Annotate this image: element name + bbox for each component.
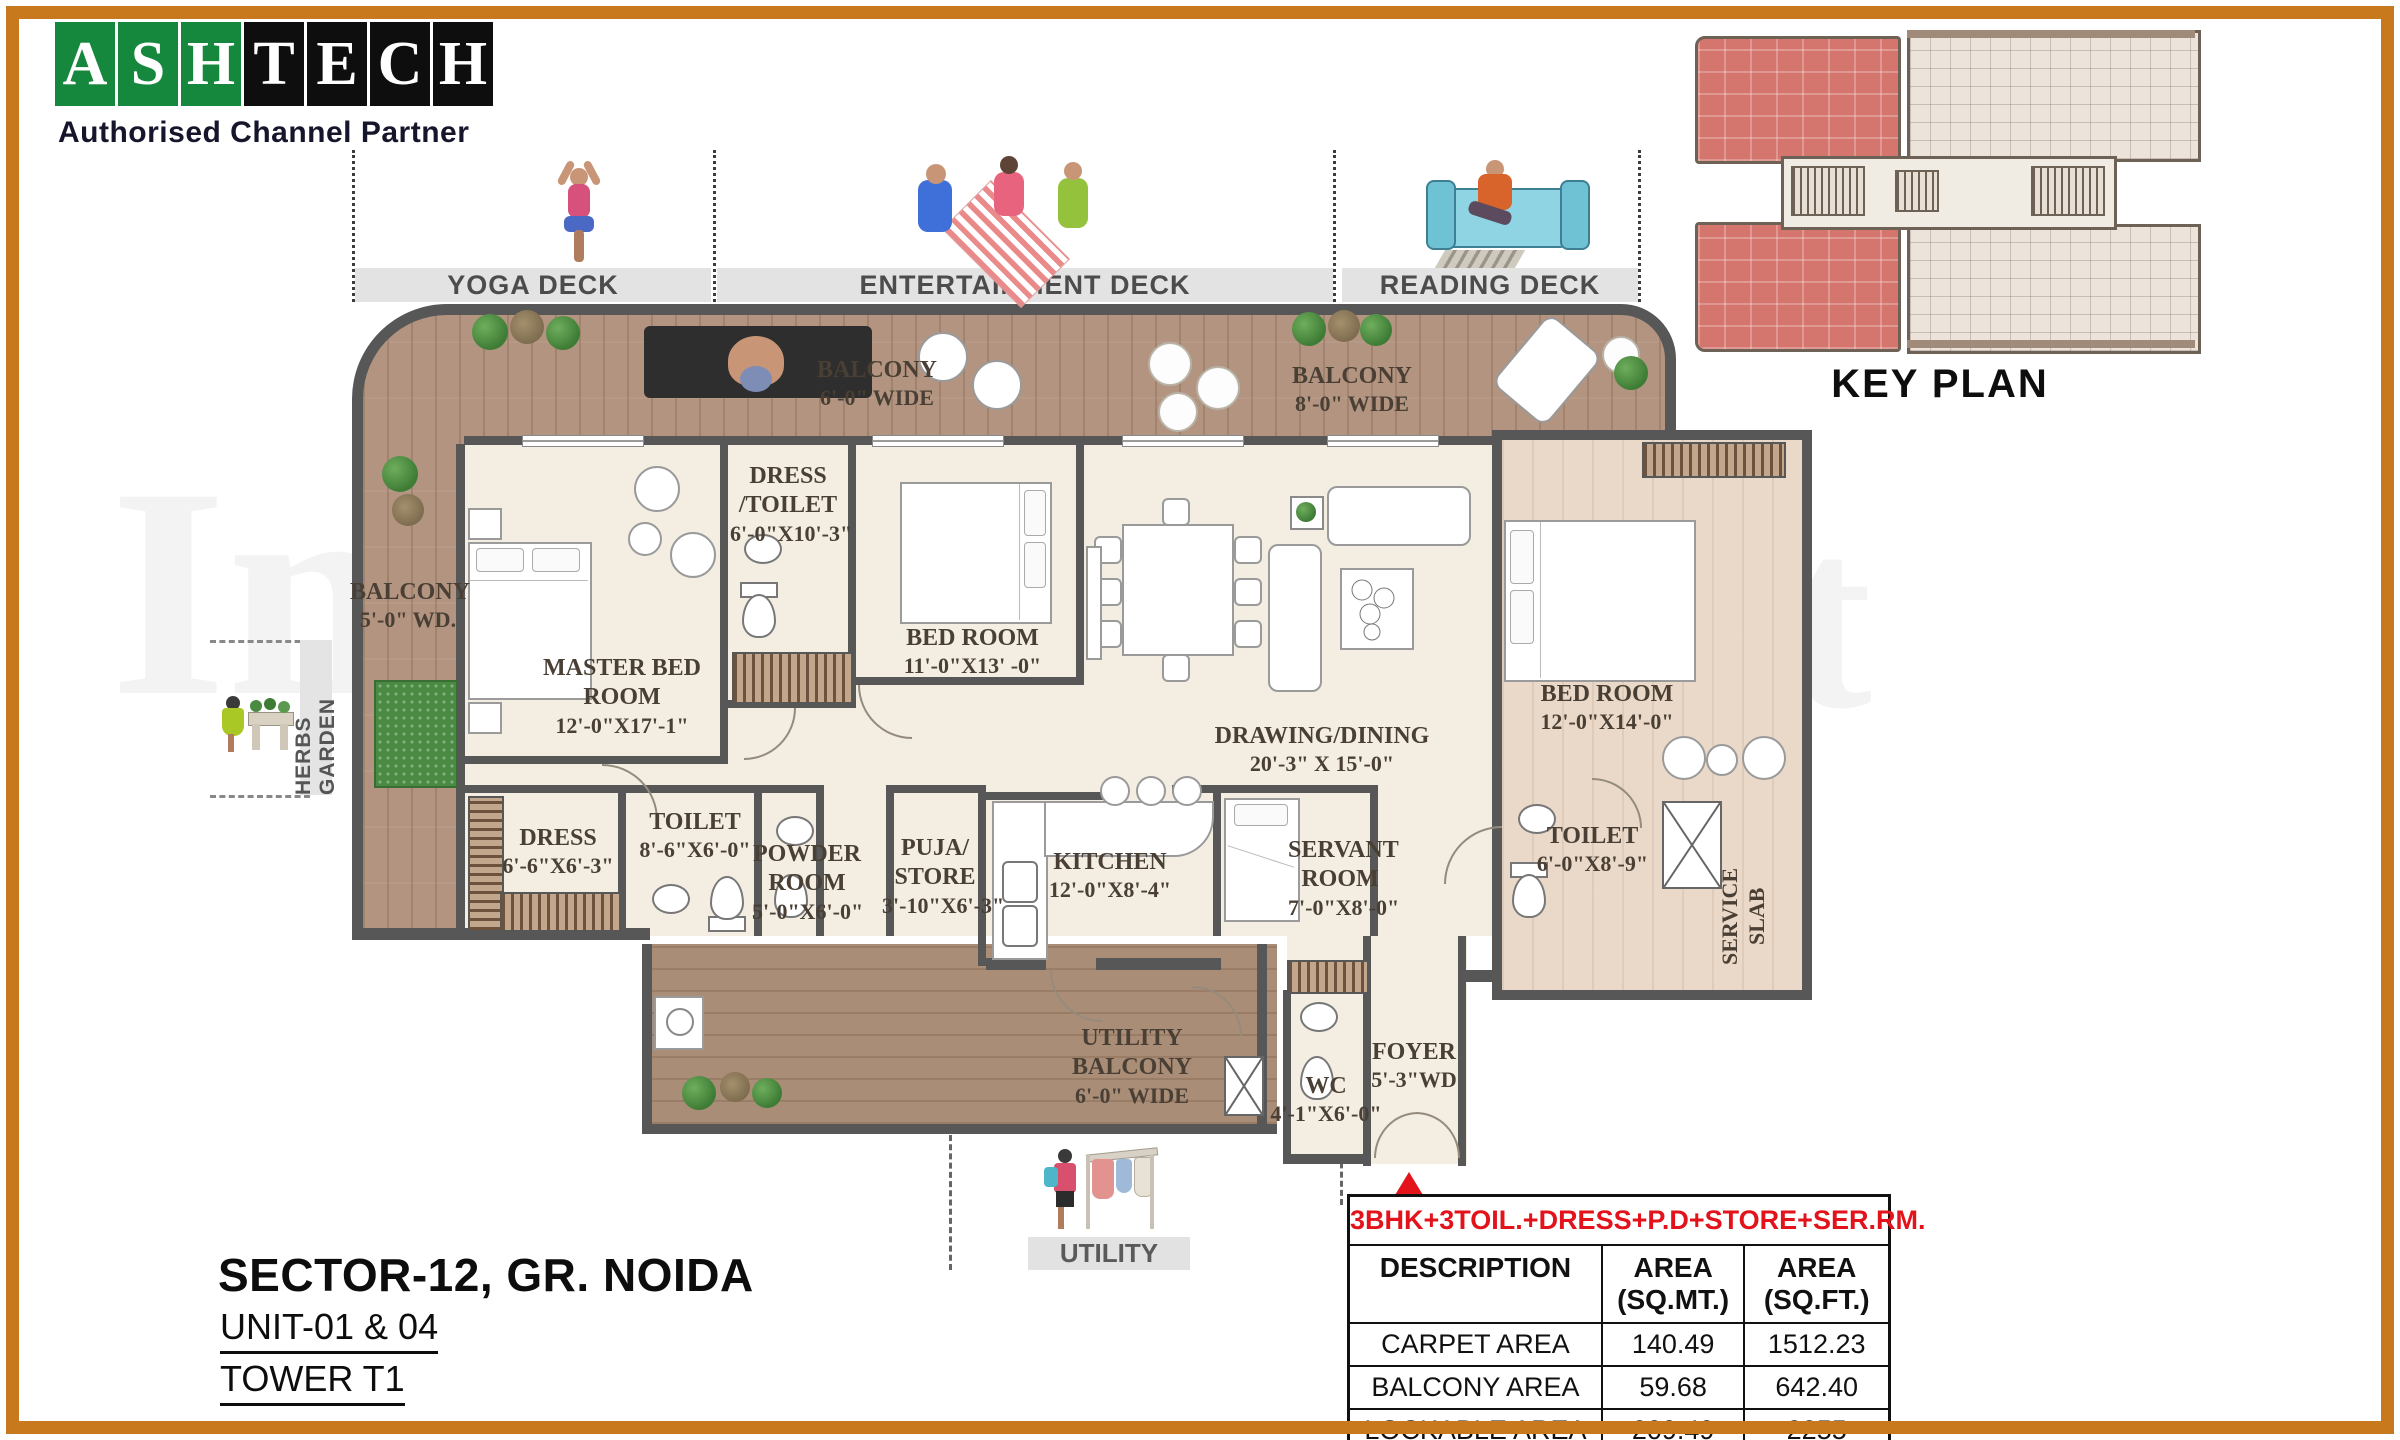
key-plan-deck-edge (1907, 30, 2195, 38)
chair-icon (1742, 736, 1786, 780)
yoga-person-icon (548, 168, 608, 264)
dining-chair (1162, 498, 1190, 526)
wall (464, 756, 728, 764)
shaft (1224, 1056, 1264, 1116)
logo-letter: T (244, 22, 304, 106)
side-table (468, 702, 502, 734)
plant-icon (752, 1078, 782, 1108)
room-label-puja-store: PUJA/ STORE3'-10"X6'-3" (882, 834, 988, 919)
shower-area (732, 652, 854, 704)
bed-icon (900, 482, 1052, 624)
plant-icon (1328, 310, 1360, 342)
window (1122, 435, 1244, 447)
deck-divider (1333, 150, 1336, 302)
sink-icon (652, 884, 690, 914)
sofa-icon (1268, 544, 1322, 692)
room-label-servant-room: SERVANT ROOM7'-0"X8'-0" (1288, 836, 1392, 921)
project-unit: UNIT-01 & 04 (220, 1306, 438, 1354)
key-plan-unit (1907, 30, 2201, 162)
exterior-wall (1283, 1154, 1371, 1164)
key-plan-deck-edge (1907, 340, 2195, 348)
deck-pouf (1148, 342, 1192, 386)
plant-icon (382, 456, 418, 492)
dining-chair (1234, 578, 1262, 606)
gardener-icon (222, 690, 294, 754)
dining-chair (1234, 620, 1262, 648)
chair-icon (1662, 736, 1706, 780)
dining-table (1122, 524, 1234, 656)
room-label-dress2: DRESS6'-6"X6'-3" (502, 824, 614, 880)
cell: CARPET AREA (1350, 1324, 1603, 1365)
utility-person-icon (1052, 1145, 1162, 1233)
plant-icon (510, 310, 544, 344)
table-row: CARPET AREA 140.49 1512.23 (1350, 1324, 1888, 1367)
cell: 642.40 (1745, 1367, 1888, 1408)
logo-letter: H (181, 22, 241, 106)
window (522, 435, 644, 447)
cell: 59.68 (1603, 1367, 1746, 1408)
plant-icon (1614, 356, 1648, 390)
deck-divider (713, 150, 716, 302)
key-plan-stairs (1791, 166, 1865, 216)
logo-letter: A (55, 22, 115, 106)
dining-chair (1162, 654, 1190, 682)
key-plan-stairs (2031, 166, 2105, 216)
col-header: AREA (SQ.MT.) (1603, 1246, 1746, 1322)
room-label-balcony-left: BALCONY5'-0" WD. (350, 578, 466, 634)
herbs-garden-tick (210, 795, 310, 798)
logo-letter: E (307, 22, 367, 106)
room-label-toilet2: TOILET6'-0"X8'-9" (1530, 822, 1655, 878)
unit-floor-plan: BALCONY5'-0" WD. BALCONY6'-0" WIDE BALCO… (352, 296, 1802, 1176)
deck-pouf (1158, 392, 1198, 432)
cell: 209.49 (1603, 1410, 1746, 1440)
ashtech-logo: A S H T E C H (55, 22, 493, 106)
table-row: LOCKABLE AREA 209.49 2255 (1350, 1410, 1888, 1440)
area-statement-table: 3BHK+3TOIL.+DRESS+P.D+STORE+SER.RM. DESC… (1347, 1194, 1891, 1440)
plant-icon (392, 494, 424, 526)
col-header: DESCRIPTION (1350, 1246, 1603, 1322)
wardrobe (1642, 442, 1786, 478)
room-label-powder-room: POWDER ROOM5'-0"X6'-0" (752, 840, 862, 925)
plant-icon (720, 1072, 750, 1102)
round-table (1706, 744, 1738, 776)
room-label-utility-balcony: UTILITY BALCONY6'-0" WIDE (1042, 1024, 1222, 1109)
plant-icon (546, 316, 580, 350)
wall (986, 792, 1116, 800)
wall (1466, 970, 1498, 982)
window (1327, 435, 1439, 447)
plant-icon (1292, 312, 1326, 346)
room-label-drawing-dining: DRAWING/DINING20'-3" X 15'-0" (1202, 722, 1442, 778)
area-table-header-row: DESCRIPTION AREA (SQ.MT.) AREA (SQ.FT.) (1350, 1246, 1888, 1324)
picnic-family-icon (890, 150, 1120, 290)
wall (886, 785, 986, 793)
room-label-bedroom2: BED ROOM11'-0"X13' -0" (890, 624, 1055, 680)
key-plan-unit (1907, 224, 2201, 354)
room-label-service-slab: SERVICE SLAB (1717, 856, 1757, 976)
plant-icon (682, 1076, 716, 1110)
armchair-icon (670, 532, 716, 578)
service-slab-hatch (1662, 801, 1722, 889)
floor-plan-page: In rt A S H T E C H Authorised Channel P… (0, 0, 2400, 1440)
cell: LOCKABLE AREA (1350, 1410, 1603, 1440)
side-table (468, 508, 502, 540)
utility-label: UTILITY (1028, 1237, 1190, 1270)
planter-box (1290, 496, 1324, 530)
balcony-rail (1287, 960, 1369, 994)
logo-letter: S (118, 22, 178, 106)
project-location: SECTOR-12, GR. NOIDA (218, 1248, 754, 1302)
room-label-balcony-top: BALCONY6'-0" WIDE (802, 356, 952, 412)
room-label-wc: WC4'-1"X6'-0" (1270, 1072, 1382, 1128)
room-label-kitchen: KITCHEN12'-0"X8'-4" (1040, 848, 1180, 904)
room-label-toilet1: TOILET8'-6"X6'-0" (630, 808, 760, 864)
hob-burner (1136, 776, 1166, 806)
cell: 140.49 (1603, 1324, 1746, 1365)
room-label-balcony-right: BALCONY8'-0" WIDE (1272, 362, 1432, 418)
room-label-dress-toilet: DRESS /TOILET6'-0"X10'-3" (730, 462, 846, 547)
coffee-table (1340, 568, 1414, 650)
bed-icon (1504, 520, 1696, 682)
key-plan-title: KEY PLAN (1790, 362, 2090, 407)
wall (1096, 958, 1221, 970)
area-table-title: 3BHK+3TOIL.+DRESS+P.D+STORE+SER.RM. (1350, 1197, 1888, 1246)
sofa-icon (1327, 486, 1471, 546)
plant-icon (1360, 314, 1392, 346)
window (872, 435, 1004, 447)
wall (1076, 444, 1084, 684)
table-row: BALCONY AREA 59.68 642.40 (1350, 1367, 1888, 1410)
room-label-bedroom3: BED ROOM12'-0"X14'-0" (1517, 680, 1697, 736)
sink-icon (1300, 1002, 1338, 1032)
hob-burner (1172, 776, 1202, 806)
cell: BALCONY AREA (1350, 1367, 1603, 1408)
round-table (628, 522, 662, 556)
wardrobe (468, 796, 504, 932)
plant-icon (472, 314, 508, 350)
deck-divider (1638, 150, 1641, 302)
hob-burner (1100, 776, 1130, 806)
herbs-garden-label: HERBS GARDEN (300, 640, 332, 795)
room-label-foyer: FOYER5'-3"WD (1368, 1038, 1460, 1094)
logo-letter: H (433, 22, 493, 106)
reading-person-icon (1420, 158, 1590, 278)
logo-letter: C (370, 22, 430, 106)
cell: 1512.23 (1745, 1324, 1888, 1365)
armchair-icon (634, 466, 680, 512)
wardrobe (500, 892, 622, 932)
room-label-master-bedroom: MASTER BED ROOM12'-0"X17'-1" (522, 654, 722, 739)
brand-tagline: Authorised Channel Partner (58, 116, 469, 150)
cell: 2255 (1745, 1410, 1888, 1440)
dining-chair (1234, 536, 1262, 564)
wall (1172, 785, 1378, 793)
tv-console (1086, 546, 1102, 660)
deck-chair (972, 360, 1022, 410)
key-plan-highlight-unit-top (1695, 36, 1901, 164)
hedge-planter (374, 680, 458, 788)
key-plan-lift (1895, 170, 1939, 212)
wall (1213, 791, 1221, 936)
col-header: AREA (SQ.FT.) (1745, 1246, 1888, 1322)
washing-machine-icon (654, 996, 704, 1050)
deck-pouf (1196, 366, 1240, 410)
project-tower: TOWER T1 (220, 1358, 405, 1406)
